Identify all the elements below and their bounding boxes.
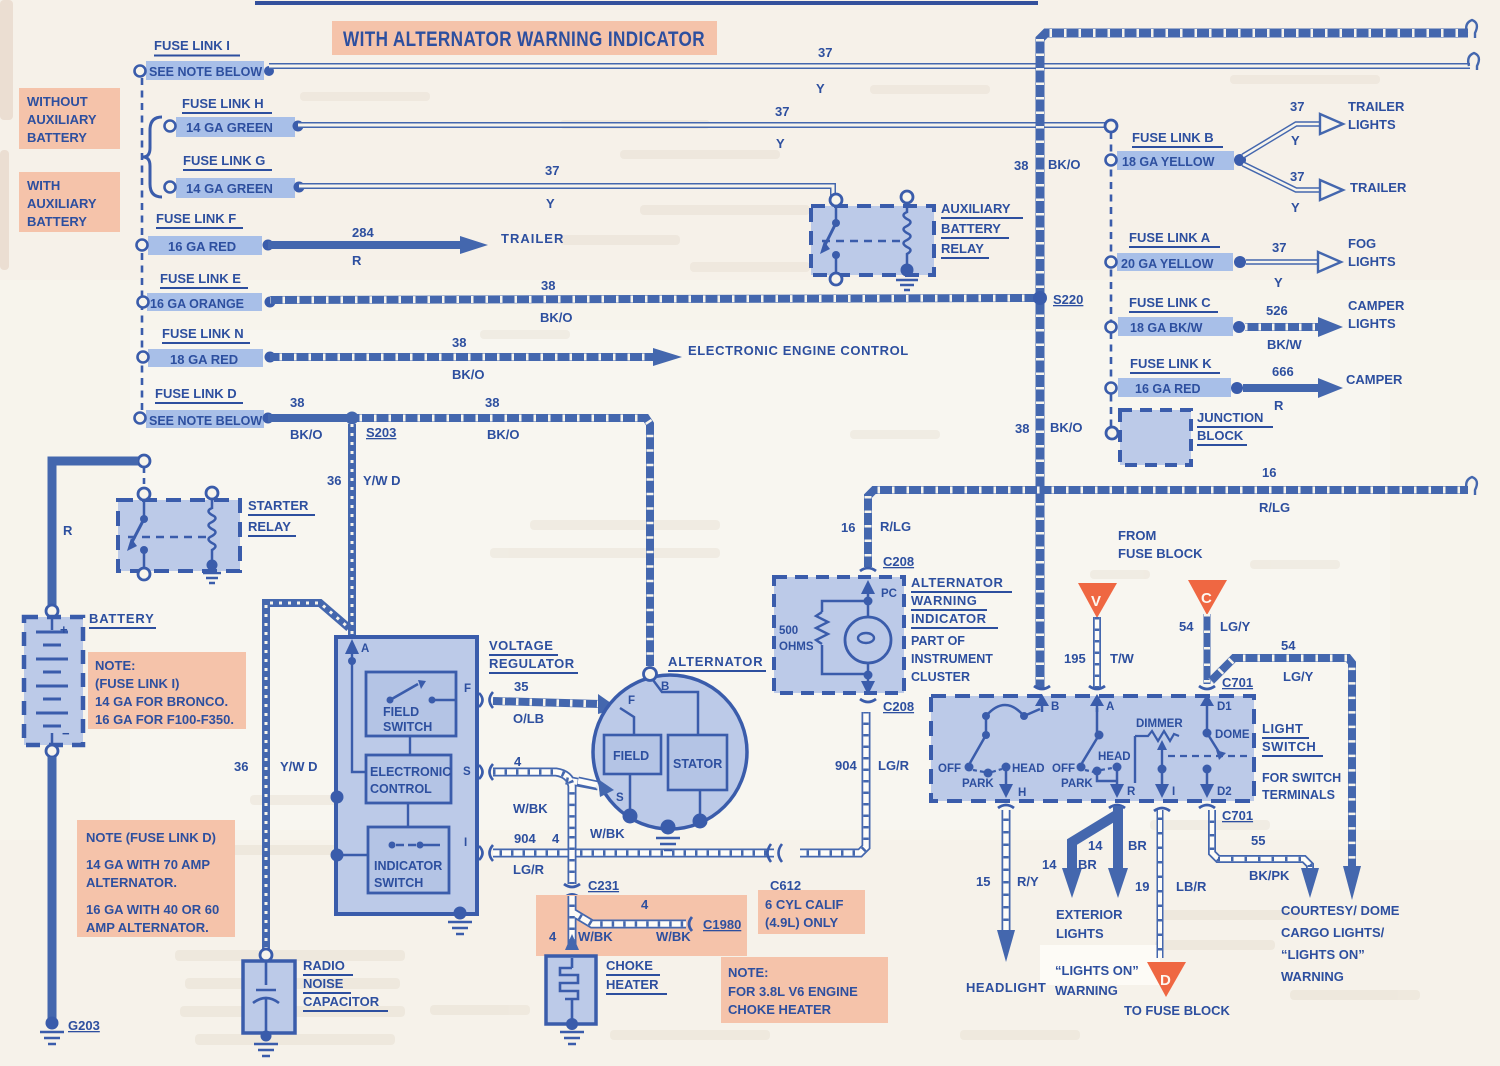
svg-text:S220: S220 [1053,292,1083,307]
svg-text:18 GA YELLOW: 18 GA YELLOW [1122,155,1215,169]
svg-text:C701: C701 [1222,808,1253,823]
svg-text:BK/O: BK/O [290,427,323,442]
svg-text:I: I [464,837,467,849]
svg-text:AUXILIARY: AUXILIARY [27,112,97,127]
svg-text:FOR SWITCH: FOR SWITCH [1262,771,1341,785]
svg-text:FUSE LINK D: FUSE LINK D [155,386,237,401]
svg-text:F: F [464,683,471,695]
svg-text:STARTER: STARTER [248,498,309,513]
svg-text:4: 4 [514,754,522,769]
svg-text:BK/W: BK/W [1267,337,1302,352]
svg-text:R/LG: R/LG [1259,500,1290,515]
svg-text:16 GA WITH 40 OR 60: 16 GA WITH 40 OR 60 [86,902,219,917]
svg-text:AMP ALTERNATOR.: AMP ALTERNATOR. [86,920,209,935]
svg-text:18 GA RED: 18 GA RED [170,352,238,367]
svg-text:HEATER: HEATER [606,977,659,992]
svg-text:16: 16 [1262,465,1276,480]
svg-text:R/Y: R/Y [1017,874,1039,889]
svg-text:S: S [463,766,471,778]
svg-text:LIGHTS: LIGHTS [1348,254,1396,269]
svg-text:STATOR: STATOR [673,757,722,771]
svg-text:BR: BR [1128,838,1147,853]
svg-text:B: B [1051,701,1059,713]
svg-text:T/W: T/W [1110,651,1135,666]
svg-text:OFF: OFF [1052,763,1075,775]
svg-text:G203: G203 [68,1018,100,1033]
svg-text:16 GA RED: 16 GA RED [168,239,236,254]
svg-text:LG/Y: LG/Y [1220,619,1251,634]
svg-text:14 GA GREEN: 14 GA GREEN [186,120,273,135]
svg-text:16 GA ORANGE: 16 GA ORANGE [150,297,244,311]
svg-text:FUSE LINK N: FUSE LINK N [162,326,244,341]
svg-text:W/BK: W/BK [578,929,613,944]
svg-text:C: C [1201,590,1212,607]
svg-text:BK/PK: BK/PK [1249,868,1290,883]
svg-text:C231: C231 [588,878,619,893]
svg-text:W/BK: W/BK [590,826,625,841]
svg-text:EXTERIOR: EXTERIOR [1056,907,1123,922]
svg-text:16: 16 [841,520,855,535]
svg-text:55: 55 [1251,833,1265,848]
svg-text:CAPACITOR: CAPACITOR [303,994,380,1009]
svg-text:526: 526 [1266,303,1288,318]
svg-text:LG/Y: LG/Y [1283,669,1314,684]
svg-text:ALTERNATOR: ALTERNATOR [668,654,763,669]
svg-text:(FUSE LINK I): (FUSE LINK I) [95,676,180,691]
svg-text:ALTERNATOR.: ALTERNATOR. [86,875,177,890]
svg-text:(4.9L) ONLY: (4.9L) ONLY [765,915,839,930]
svg-text:38: 38 [485,395,499,410]
svg-text:ALTERNATOR: ALTERNATOR [911,575,1003,590]
svg-text:DOME: DOME [1215,729,1250,741]
svg-text:RELAY: RELAY [248,519,291,534]
svg-text:38: 38 [1015,421,1029,436]
svg-text:A: A [361,643,369,655]
svg-text:FUSE LINK G: FUSE LINK G [183,153,265,168]
svg-text:S: S [616,792,624,804]
svg-text:FOR 3.8L V6 ENGINE: FOR 3.8L V6 ENGINE [728,984,858,999]
svg-text:AUXILIARY: AUXILIARY [941,201,1011,216]
svg-text:36: 36 [234,759,248,774]
svg-text:LIGHTS: LIGHTS [1056,926,1104,941]
svg-text:19: 19 [1135,879,1149,894]
svg-text:CHOKE: CHOKE [606,958,653,973]
svg-text:LG/R: LG/R [513,862,545,877]
svg-text:Y/W D: Y/W D [280,759,318,774]
svg-text:LIGHT: LIGHT [1262,721,1304,736]
svg-text:195: 195 [1064,651,1086,666]
svg-text:37: 37 [1272,240,1286,255]
svg-text:DIMMER: DIMMER [1136,718,1183,730]
svg-text:TRAILER: TRAILER [1348,99,1405,114]
svg-text:14: 14 [1088,838,1103,853]
svg-text:BATTERY: BATTERY [89,611,155,626]
svg-text:54: 54 [1179,619,1194,634]
svg-text:Y: Y [776,136,785,151]
svg-text:INDICATOR: INDICATOR [374,859,442,873]
svg-text:I: I [1172,786,1175,798]
svg-text:18 GA BK/W: 18 GA BK/W [1130,321,1203,335]
svg-text:INSTRUMENT: INSTRUMENT [911,652,993,666]
svg-text:R: R [63,523,73,538]
svg-text:666: 666 [1272,364,1294,379]
svg-text:R: R [1274,398,1284,413]
svg-text:38: 38 [452,335,466,350]
svg-text:H: H [1018,787,1026,799]
svg-text:CAMPER: CAMPER [1348,298,1405,313]
svg-text:TERMINALS: TERMINALS [1262,788,1335,802]
svg-text:OFF: OFF [938,763,961,775]
svg-text:CONTROL: CONTROL [370,782,432,796]
svg-text:54: 54 [1281,638,1296,653]
svg-text:NOISE: NOISE [303,976,344,991]
svg-text:904: 904 [514,831,536,846]
svg-text:TO FUSE BLOCK: TO FUSE BLOCK [1124,1003,1231,1018]
svg-text:W/BK: W/BK [513,801,548,816]
svg-text:BK/O: BK/O [452,367,485,382]
svg-text:D1: D1 [1217,701,1232,713]
svg-text:NOTE:: NOTE: [728,965,768,980]
svg-text:FUSE LINK K: FUSE LINK K [1130,356,1212,371]
svg-text:CAMPER: CAMPER [1346,372,1403,387]
svg-text:ELECTRONIC ENGINE CONTROL: ELECTRONIC ENGINE CONTROL [688,343,909,358]
svg-text:TRAILER: TRAILER [1350,180,1407,195]
svg-text:20 GA YELLOW: 20 GA YELLOW [1121,257,1214,271]
svg-text:FOG: FOG [1348,236,1376,251]
svg-text:WITH ALTERNATOR WARNING INDICA: WITH ALTERNATOR WARNING INDICATOR [343,27,705,51]
svg-text:BLOCK: BLOCK [1197,428,1244,443]
svg-text:Y: Y [1291,133,1300,148]
svg-text:C208: C208 [883,554,914,569]
svg-text:BATTERY: BATTERY [27,130,87,145]
svg-text:BATTERY: BATTERY [941,221,1001,236]
svg-text:4: 4 [641,897,649,912]
svg-text:WITH: WITH [27,178,60,193]
svg-text:RADIO: RADIO [303,958,345,973]
svg-text:14: 14 [1042,857,1057,872]
svg-text:4: 4 [552,831,560,846]
svg-text:W/BK: W/BK [656,929,691,944]
svg-text:FUSE LINK H: FUSE LINK H [182,96,264,111]
svg-text:WARNING: WARNING [911,593,977,608]
svg-text:37: 37 [818,45,832,60]
svg-text:Y/W D: Y/W D [363,473,401,488]
svg-text:37: 37 [1290,99,1304,114]
svg-text:BK/O: BK/O [1048,157,1081,172]
svg-text:14 GA GREEN: 14 GA GREEN [186,181,273,196]
svg-text:D2: D2 [1217,786,1232,798]
svg-text:D: D [1160,972,1171,989]
svg-text:15: 15 [976,874,990,889]
svg-text:HEADLIGHT: HEADLIGHT [966,980,1046,995]
svg-text:C701: C701 [1222,675,1253,690]
svg-text:RELAY: RELAY [941,241,984,256]
svg-text:LG/R: LG/R [878,758,910,773]
svg-text:WITHOUT: WITHOUT [27,94,88,109]
svg-text:“LIGHTS ON”: “LIGHTS ON” [1281,947,1365,962]
svg-text:BK/O: BK/O [540,310,573,325]
svg-text:SWITCH: SWITCH [1262,739,1316,754]
svg-text:NOTE (FUSE LINK D): NOTE (FUSE LINK D) [86,830,216,845]
svg-text:−: − [62,726,70,741]
svg-text:FUSE LINK A: FUSE LINK A [1129,230,1211,245]
svg-text:Y: Y [1274,275,1283,290]
svg-text:38: 38 [541,278,555,293]
svg-text:38: 38 [1014,158,1028,173]
svg-text:14 GA FOR BRONCO.: 14 GA FOR BRONCO. [95,694,228,709]
svg-text:37: 37 [1290,169,1304,184]
svg-text:FUSE LINK F: FUSE LINK F [156,211,236,226]
svg-text:REGULATOR: REGULATOR [489,656,575,671]
svg-text:BK/O: BK/O [487,427,520,442]
svg-text:FUSE LINK B: FUSE LINK B [1132,130,1214,145]
svg-text:4: 4 [549,929,557,944]
svg-text:JUNCTION: JUNCTION [1197,410,1263,425]
svg-text:C1980: C1980 [703,917,741,932]
svg-text:FUSE LINK I: FUSE LINK I [154,38,230,53]
svg-text:V: V [1091,593,1101,610]
svg-text:PARK: PARK [962,778,994,790]
svg-text:6 CYL CALIF: 6 CYL CALIF [765,897,844,912]
svg-text:SWITCH: SWITCH [383,720,432,734]
svg-text:R: R [1127,786,1136,798]
svg-text:16 GA RED: 16 GA RED [1135,382,1201,396]
svg-text:CLUSTER: CLUSTER [911,670,970,684]
svg-text:Y: Y [1291,200,1300,215]
svg-text:COURTESY/ DOME: COURTESY/ DOME [1281,903,1400,918]
svg-text:Y: Y [546,196,555,211]
svg-text:WARNING: WARNING [1055,983,1118,998]
svg-text:500: 500 [779,625,798,637]
svg-text:PART OF: PART OF [911,634,965,648]
svg-text:904: 904 [835,758,857,773]
svg-text:284: 284 [352,225,374,240]
svg-text:ELECTRONIC: ELECTRONIC [370,765,451,779]
svg-text:A: A [1106,701,1114,713]
svg-text:“LIGHTS ON”: “LIGHTS ON” [1055,963,1139,978]
svg-text:35: 35 [514,679,528,694]
svg-text:NOTE:: NOTE: [95,658,135,673]
svg-text:FIELD: FIELD [383,705,419,719]
svg-text:AUXILIARY: AUXILIARY [27,196,97,211]
svg-text:LIGHTS: LIGHTS [1348,117,1396,132]
svg-text:VOLTAGE: VOLTAGE [489,638,553,653]
svg-text:TRAILER: TRAILER [501,231,564,246]
svg-text:WARNING: WARNING [1281,969,1344,984]
svg-text:14 GA WITH 70 AMP: 14 GA WITH 70 AMP [86,857,210,872]
svg-text:38: 38 [290,395,304,410]
svg-text:SWITCH: SWITCH [374,876,423,890]
svg-text:F: F [628,695,635,707]
svg-text:36: 36 [327,473,341,488]
svg-text:CHOKE HEATER: CHOKE HEATER [728,1002,832,1017]
svg-text:BATTERY: BATTERY [27,214,87,229]
svg-text:R: R [352,253,362,268]
svg-text:BR: BR [1078,857,1097,872]
svg-text:SEE NOTE BELOW: SEE NOTE BELOW [149,65,262,79]
svg-text:37: 37 [545,163,559,178]
svg-text:HEAD: HEAD [1012,763,1045,775]
svg-text:INDICATOR: INDICATOR [911,611,987,626]
svg-text:OHMS: OHMS [779,641,814,653]
svg-text:SEE NOTE BELOW: SEE NOTE BELOW [149,414,262,428]
svg-text:LIGHTS: LIGHTS [1348,316,1396,331]
svg-text:37: 37 [775,104,789,119]
svg-text:FIELD: FIELD [613,749,649,763]
svg-text:+: + [60,622,68,637]
svg-text:O/LB: O/LB [513,711,544,726]
svg-text:S203: S203 [366,425,396,440]
svg-text:HEAD: HEAD [1098,751,1131,763]
svg-text:CARGO LIGHTS/: CARGO LIGHTS/ [1281,925,1385,940]
svg-text:PC: PC [881,588,897,600]
svg-text:Y: Y [816,81,825,96]
svg-text:C208: C208 [883,699,914,714]
svg-text:FUSE LINK E: FUSE LINK E [160,271,241,286]
svg-text:FUSE BLOCK: FUSE BLOCK [1118,546,1203,561]
svg-text:FUSE LINK C: FUSE LINK C [1129,295,1211,310]
svg-text:FROM: FROM [1118,528,1156,543]
svg-text:16 GA FOR F100-F350.: 16 GA FOR F100-F350. [95,712,234,727]
svg-text:BK/O: BK/O [1050,420,1083,435]
svg-text:R/LG: R/LG [880,519,911,534]
svg-text:PARK: PARK [1061,778,1093,790]
svg-text:LB/R: LB/R [1176,879,1207,894]
